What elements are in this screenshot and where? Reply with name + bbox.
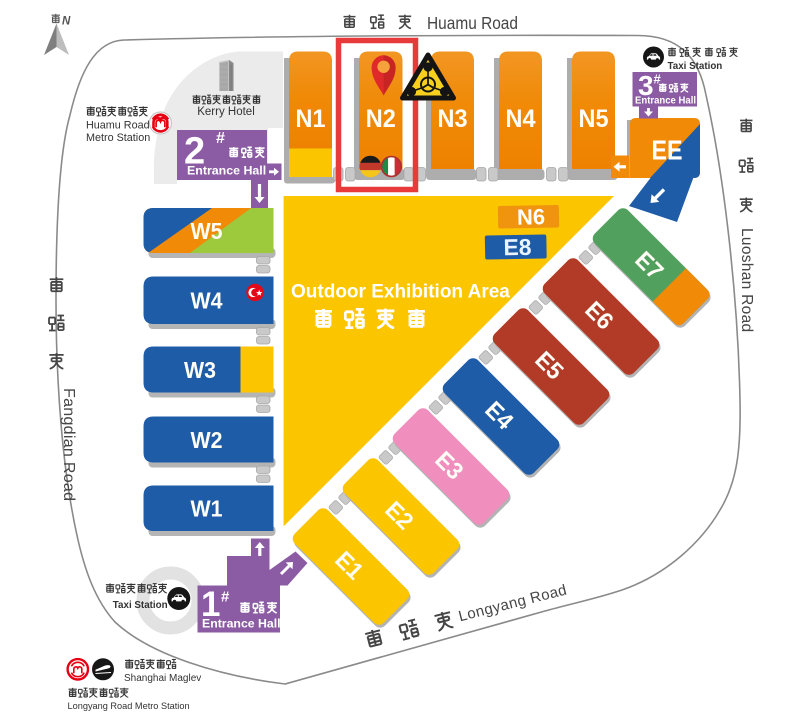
svg-text:Entrance Hall: Entrance Hall bbox=[202, 617, 281, 631]
svg-text:N1: N1 bbox=[296, 105, 326, 133]
svg-text:W2: W2 bbox=[191, 427, 223, 453]
svg-text:Entrance Hall: Entrance Hall bbox=[187, 164, 266, 178]
svg-text:N3: N3 bbox=[438, 105, 468, 133]
svg-text:Huamu Road: Huamu Road bbox=[86, 120, 150, 132]
svg-text:Longyang Road Metro Station: Longyang Road Metro Station bbox=[68, 701, 190, 711]
svg-text:W4: W4 bbox=[191, 288, 223, 314]
svg-text:E8: E8 bbox=[503, 234, 532, 260]
svg-text:N6: N6 bbox=[517, 204, 545, 229]
svg-text:Shanghai Maglev: Shanghai Maglev bbox=[124, 673, 201, 684]
svg-text:Taxi Station: Taxi Station bbox=[668, 61, 723, 72]
svg-text:#: # bbox=[221, 589, 230, 606]
svg-text:Luoshan Road: Luoshan Road bbox=[738, 228, 755, 332]
svg-text:Fangdian Road: Fangdian Road bbox=[60, 388, 77, 501]
svg-text:N5: N5 bbox=[579, 105, 609, 133]
svg-text:Outdoor Exhibition Area: Outdoor Exhibition Area bbox=[291, 282, 510, 303]
svg-text:EE: EE bbox=[652, 135, 683, 166]
svg-text:Huamu Road: Huamu Road bbox=[427, 13, 518, 33]
svg-text:N: N bbox=[62, 16, 71, 28]
svg-text:Taxi Station: Taxi Station bbox=[113, 600, 168, 611]
svg-text:N4: N4 bbox=[506, 105, 536, 133]
svg-text:Metro Station: Metro Station bbox=[86, 132, 150, 144]
svg-text:W1: W1 bbox=[191, 496, 223, 522]
svg-text:W3: W3 bbox=[184, 357, 216, 383]
svg-text:N2: N2 bbox=[366, 105, 396, 133]
svg-text:#: # bbox=[216, 130, 225, 147]
svg-text:W5: W5 bbox=[191, 218, 223, 244]
svg-text:Kerry Hotel: Kerry Hotel bbox=[197, 106, 255, 118]
svg-text:Entrance Hall: Entrance Hall bbox=[635, 95, 696, 107]
